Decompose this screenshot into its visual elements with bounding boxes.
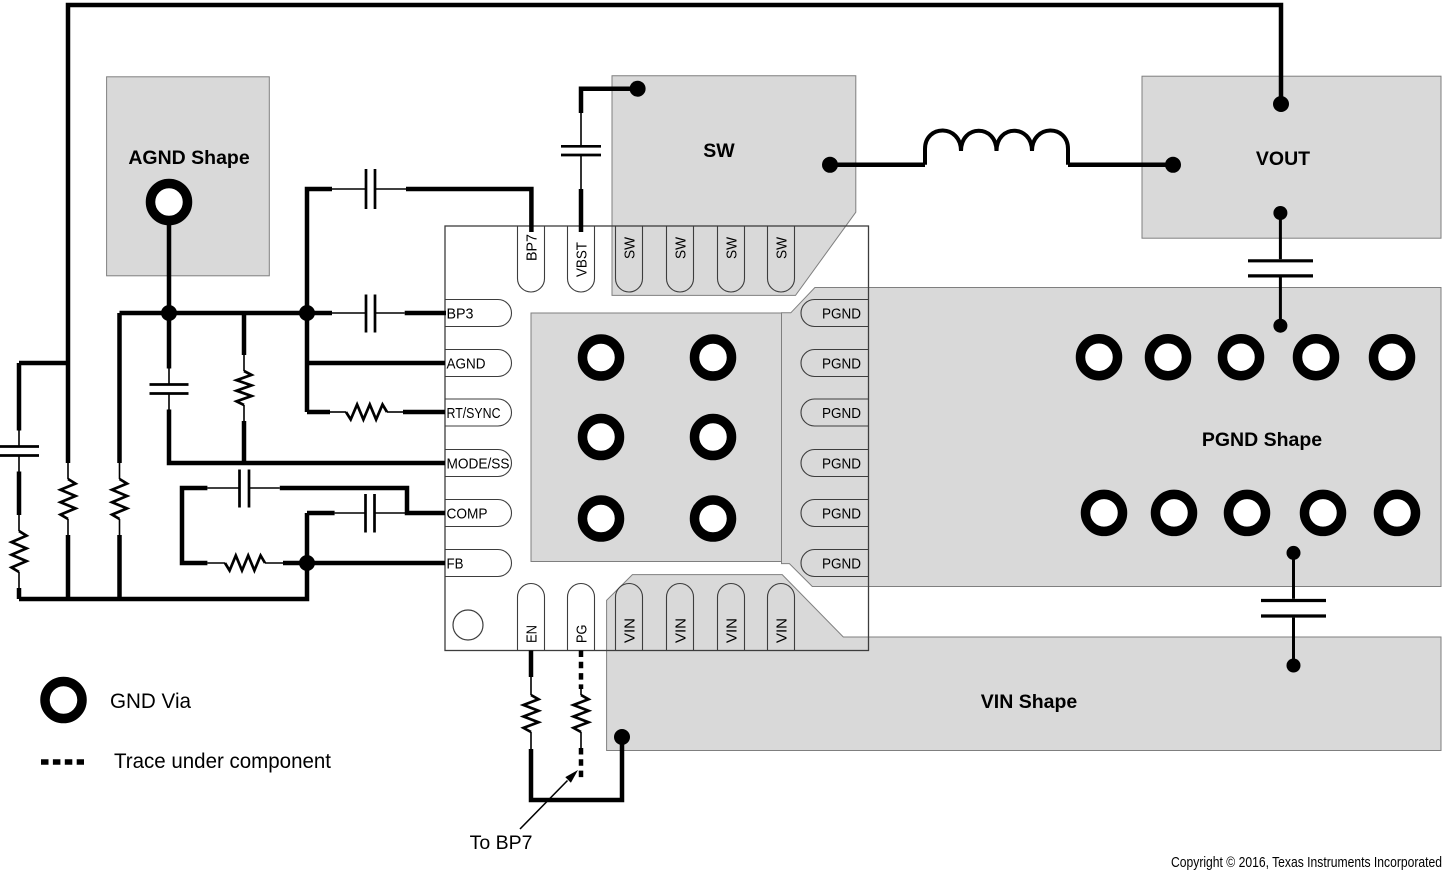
svg-text:BP7: BP7 [524,234,541,261]
svg-text:MODE/SS: MODE/SS [447,456,510,473]
svg-text:PGND: PGND [822,456,861,473]
svg-text:RT/SYNC: RT/SYNC [447,405,501,422]
svg-text:AGND: AGND [447,356,486,373]
svg-text:PGND: PGND [822,506,861,523]
svg-text:SW: SW [703,140,735,162]
svg-text:PG: PG [574,625,591,644]
svg-text:AGND Shape: AGND Shape [128,147,250,169]
svg-text:PGND Shape: PGND Shape [1202,429,1322,451]
svg-text:PGND: PGND [822,356,861,373]
svg-text:SW: SW [774,236,791,259]
svg-text:SW: SW [622,236,639,259]
svg-text:Trace under component: Trace under component [114,749,331,773]
svg-text:VIN Shape: VIN Shape [981,691,1078,713]
svg-text:To BP7: To BP7 [470,832,533,854]
svg-text:PGND: PGND [822,556,861,573]
svg-text:EN: EN [524,625,541,643]
svg-text:BP3: BP3 [447,306,474,323]
svg-text:FB: FB [447,556,464,573]
svg-text:GND Via: GND Via [110,689,191,713]
svg-text:PGND: PGND [822,405,861,422]
svg-text:PGND: PGND [822,306,861,323]
svg-text:VOUT: VOUT [1256,148,1310,170]
svg-text:Copyright © 2016, Texas Instru: Copyright © 2016, Texas Instruments Inco… [1171,855,1442,871]
svg-text:VBST: VBST [574,242,591,277]
svg-text:VIN: VIN [622,618,639,643]
svg-text:SW: SW [673,236,690,259]
svg-text:COMP: COMP [447,506,488,523]
svg-text:VIN: VIN [774,618,791,643]
svg-text:SW: SW [724,236,741,259]
svg-text:VIN: VIN [724,618,741,643]
svg-text:VIN: VIN [673,618,690,643]
